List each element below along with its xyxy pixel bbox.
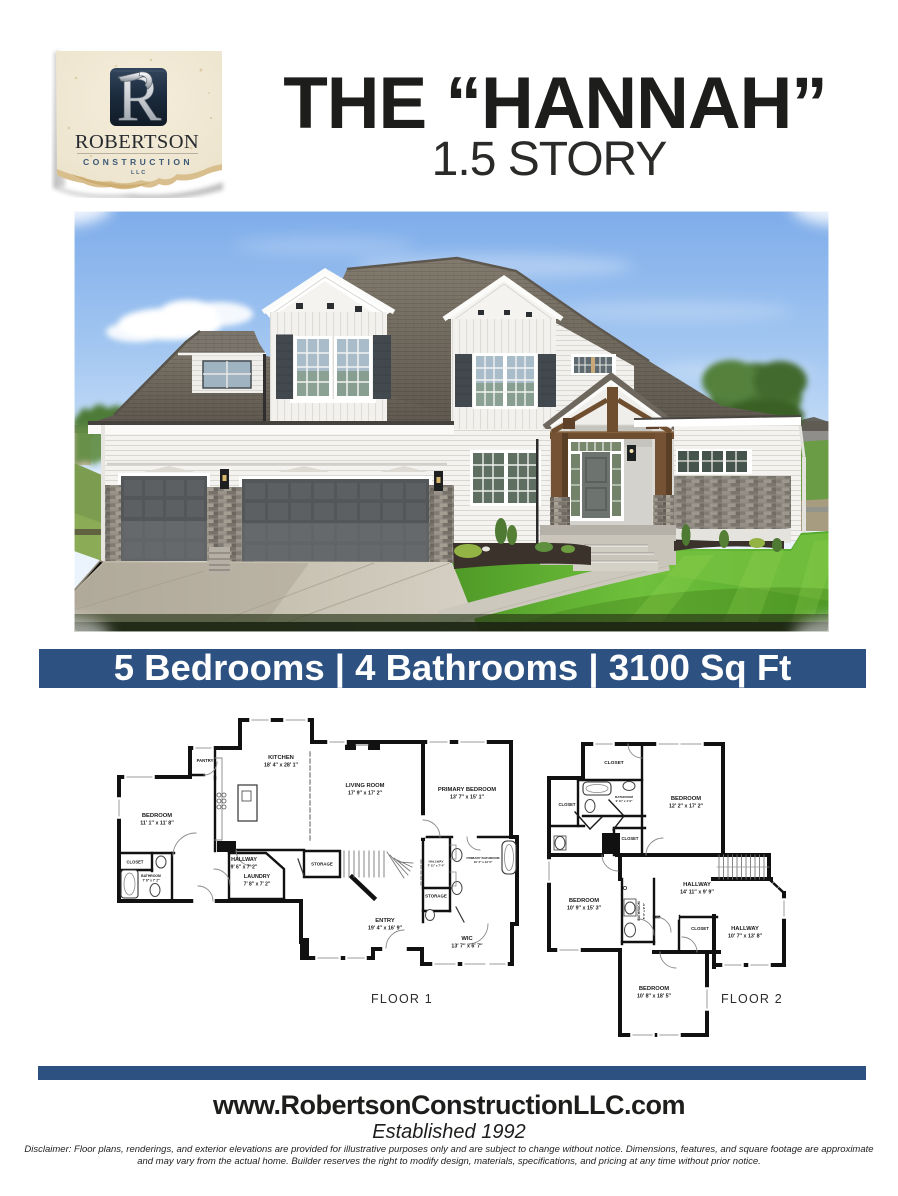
svg-text:9′ 11″ x 4′ 9″: 9′ 11″ x 4′ 9″ [616,799,633,803]
svg-text:ENTRY: ENTRY [375,918,395,924]
svg-text:18′ 4″ x 28′ 1″: 18′ 4″ x 28′ 1″ [264,763,299,769]
svg-text:LAUNDRY: LAUNDRY [244,874,271,880]
svg-text:BEDROOM: BEDROOM [142,813,172,819]
svg-text:10′ 8″ x 18′ 5″: 10′ 8″ x 18′ 5″ [637,994,672,1000]
svg-text:CLOSET: CLOSET [622,836,639,841]
svg-text:19′ 4″ x 16′ 9″: 19′ 4″ x 16′ 9″ [368,926,403,932]
svg-text:7′ 8″ x 7′ 2″: 7′ 8″ x 7′ 2″ [244,882,271,888]
svg-text:BEDROOM: BEDROOM [671,796,701,802]
svg-text:10′ 9″ x 15′ 3″: 10′ 9″ x 15′ 3″ [567,906,602,912]
svg-text:PANTRY: PANTRY [197,758,214,763]
svg-text:10′ 4″ x 13′ 0″: 10′ 4″ x 13′ 0″ [474,860,493,864]
svg-text:7′ 11″ x 7′ 4″: 7′ 11″ x 7′ 4″ [428,864,445,868]
svg-text:WIC: WIC [461,936,473,942]
svg-text:HALLWAY: HALLWAY [683,882,711,888]
svg-text:HALLWAY: HALLWAY [731,926,759,932]
svg-text:13′ 7″ x 6′ 7″: 13′ 7″ x 6′ 7″ [451,944,483,950]
svg-text:CLOSET: CLOSET [604,760,624,766]
svg-text:14′ 11″ x 9′ 9″: 14′ 11″ x 9′ 9″ [680,890,714,896]
svg-text:LIVING ROOM: LIVING ROOM [346,783,385,789]
svg-text:ROBERTSON: ROBERTSON [75,131,199,153]
svg-text:17′ 9″ x 17′ 2″: 17′ 9″ x 17′ 2″ [348,791,383,797]
svg-text:7′ 6″ x 7′ 2″: 7′ 6″ x 7′ 2″ [143,879,160,883]
svg-text:KITCHEN: KITCHEN [268,755,294,761]
svg-text:10′ 7″ x 13′ 8″: 10′ 7″ x 13′ 8″ [728,934,763,940]
svg-text:12′ 2″ x 17′ 2″: 12′ 2″ x 17′ 2″ [669,804,704,810]
svg-text:CLOSET: CLOSET [559,802,576,807]
svg-text:BEDROOM: BEDROOM [639,986,669,992]
svg-text:PRIMARY BEDROOM: PRIMARY BEDROOM [438,787,496,793]
svg-text:BEDROOM: BEDROOM [569,898,599,904]
svg-text:STORAGE: STORAGE [311,862,333,867]
svg-text:13′ 7″ x 15′ 1″: 13′ 7″ x 15′ 1″ [450,795,485,801]
svg-text:5′ 0″ x 9′ 5″: 5′ 0″ x 9′ 5″ [642,902,646,919]
svg-text:FLOOR 1: FLOOR 1 [371,992,433,1006]
svg-text:BATHROOM: BATHROOM [637,901,641,920]
svg-text:9′ 6″ x 7′ 2″: 9′ 6″ x 7′ 2″ [231,865,258,871]
svg-text:BATHROOM: BATHROOM [141,874,161,878]
svg-text:LLC: LLC [131,170,147,176]
svg-text:HALLWAY: HALLWAY [231,857,257,863]
svg-text:CONSTRUCTION: CONSTRUCTION [83,157,193,167]
svg-text:STORAGE: STORAGE [425,894,447,899]
svg-text:CLOSET: CLOSET [691,926,709,931]
svg-text:CLOSET: CLOSET [127,860,144,865]
svg-text:11′ 1″ x 11′ 8″: 11′ 1″ x 11′ 8″ [140,821,174,827]
svg-text:FLOOR 2: FLOOR 2 [721,992,783,1006]
